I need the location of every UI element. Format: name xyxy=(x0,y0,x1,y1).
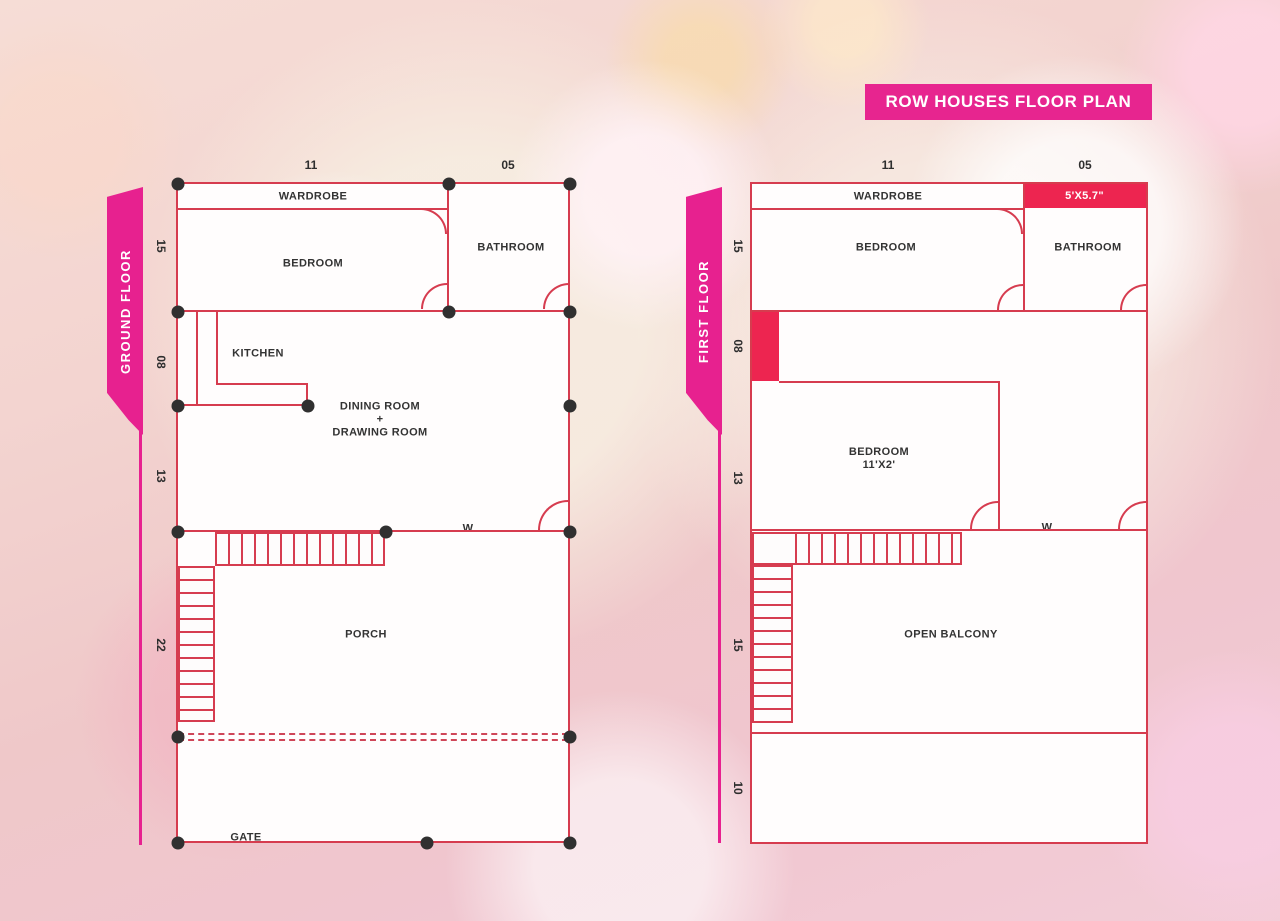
first-window-label: W xyxy=(1042,522,1053,535)
first-balcony-label: OPEN BALCONY xyxy=(904,629,997,642)
interior-wall xyxy=(998,381,1000,531)
ground-dim-side-22: 22 xyxy=(154,638,168,651)
junction-dot xyxy=(443,178,456,191)
interior-wall xyxy=(178,310,568,312)
door-swing-arc xyxy=(970,501,998,529)
ground-dim-side-13: 13 xyxy=(154,469,168,482)
first-bathroom-size-label: 5'X5.7" xyxy=(1065,190,1104,202)
junction-dot xyxy=(564,526,577,539)
ground-wardrobe-label: WARDROBE xyxy=(279,191,348,204)
ground-dim-side-15: 15 xyxy=(154,239,168,252)
interior-wall xyxy=(752,732,1146,734)
ground-porch-label: PORCH xyxy=(345,629,387,642)
first-bathroom-size-block: 5'X5.7" xyxy=(1023,184,1146,208)
junction-dot xyxy=(564,731,577,744)
ground-dim-top-05: 05 xyxy=(501,158,514,172)
ground-gate-label: GATE xyxy=(230,832,261,845)
bedroom2-size-line: 11'X2' xyxy=(849,459,909,472)
first-floor-ribbon-label: FIRST FLOOR xyxy=(697,259,712,362)
junction-dot xyxy=(443,306,456,319)
first-dim-side-13: 13 xyxy=(731,471,745,484)
door-swing-arc xyxy=(421,283,447,309)
first-dim-side-10: 10 xyxy=(731,781,745,794)
first-duct-block xyxy=(752,312,779,381)
junction-dot xyxy=(172,400,185,413)
compound-dashed-line xyxy=(178,733,568,735)
door-swing-arc xyxy=(1118,501,1146,529)
ground-dim-side-08: 08 xyxy=(154,355,168,368)
first-bathroom-label: BATHROOM xyxy=(1054,242,1121,255)
first-wardrobe-label: WARDROBE xyxy=(854,191,923,204)
ground-kitchen-label: KITCHEN xyxy=(232,348,284,361)
interior-wall xyxy=(779,381,1000,383)
door-swing-arc xyxy=(997,284,1023,310)
junction-dot xyxy=(172,731,185,744)
junction-dot xyxy=(564,306,577,319)
stairs-side-run xyxy=(752,565,793,723)
first-ribbon-tail-line xyxy=(718,424,721,843)
first-dim-side-15b: 15 xyxy=(731,638,745,651)
first-dim-top-11: 11 xyxy=(882,158,895,172)
door-swing-arc xyxy=(997,208,1023,234)
junction-dot xyxy=(172,837,185,850)
junction-dot xyxy=(172,178,185,191)
ground-window-label: W xyxy=(463,523,474,536)
junction-dot xyxy=(380,526,393,539)
ground-dim-top-11: 11 xyxy=(305,158,318,172)
interior-wall xyxy=(196,310,198,406)
junction-dot xyxy=(564,178,577,191)
interior-wall xyxy=(216,383,308,385)
compound-dashed-line xyxy=(178,739,568,741)
interior-wall xyxy=(216,310,218,385)
first-dim-top-05: 05 xyxy=(1078,158,1091,172)
door-swing-arc xyxy=(538,500,568,530)
interior-wall xyxy=(752,529,1146,531)
junction-dot xyxy=(302,400,315,413)
page-title: ROW HOUSES FLOOR PLAN xyxy=(886,92,1132,112)
page: ROW HOUSES FLOOR PLAN GROUND FLOOR FIRST… xyxy=(0,0,1280,921)
bedroom2-name-line: BEDROOM xyxy=(849,446,909,459)
ground-bedroom-label: BEDROOM xyxy=(283,258,343,271)
first-floor-ribbon: FIRST FLOOR xyxy=(686,187,722,435)
interior-wall xyxy=(1023,184,1025,312)
stairs-upper-run xyxy=(215,532,385,566)
drawing-room-line: DRAWING ROOM xyxy=(332,427,427,440)
ground-dining-label: DINING ROOM + DRAWING ROOM xyxy=(332,401,427,440)
door-swing-arc xyxy=(543,283,569,309)
first-bedroom-label: BEDROOM xyxy=(856,242,916,255)
first-floor-plan: 5'X5.7" WARDROBE BEDROOM BATHROOM BEDROO… xyxy=(750,182,1148,844)
stairs-side-run xyxy=(178,566,215,722)
stair-treads xyxy=(180,568,213,720)
door-swing-arc xyxy=(1120,284,1146,310)
dining-room-line: DINING ROOM xyxy=(332,401,427,414)
ground-floor-ribbon: GROUND FLOOR xyxy=(107,187,143,435)
interior-wall xyxy=(752,310,1146,312)
plus-sign: + xyxy=(332,414,427,427)
first-dim-side-08: 08 xyxy=(731,339,745,352)
ground-ribbon-tail-line xyxy=(139,424,142,845)
ground-bathroom-label: BATHROOM xyxy=(477,242,544,255)
interior-wall xyxy=(752,208,1025,210)
interior-wall xyxy=(178,208,449,210)
junction-dot xyxy=(421,837,434,850)
title-banner: ROW HOUSES FLOOR PLAN xyxy=(865,84,1152,120)
door-swing-arc xyxy=(421,208,447,234)
junction-dot xyxy=(172,526,185,539)
interior-wall xyxy=(447,184,449,312)
first-dim-side-15a: 15 xyxy=(731,239,745,252)
junction-dot xyxy=(172,306,185,319)
stair-treads xyxy=(217,534,383,564)
ground-floor-ribbon-label: GROUND FLOOR xyxy=(118,249,133,374)
junction-dot xyxy=(564,837,577,850)
stair-treads xyxy=(754,567,791,721)
stair-treads xyxy=(795,534,960,563)
ground-floor-plan: WARDROBE BEDROOM BATHROOM KITCHEN DINING… xyxy=(176,182,570,843)
junction-dot xyxy=(564,400,577,413)
first-bedroom2-label: BEDROOM 11'X2' xyxy=(849,446,909,472)
stairs-upper-run xyxy=(752,532,962,565)
